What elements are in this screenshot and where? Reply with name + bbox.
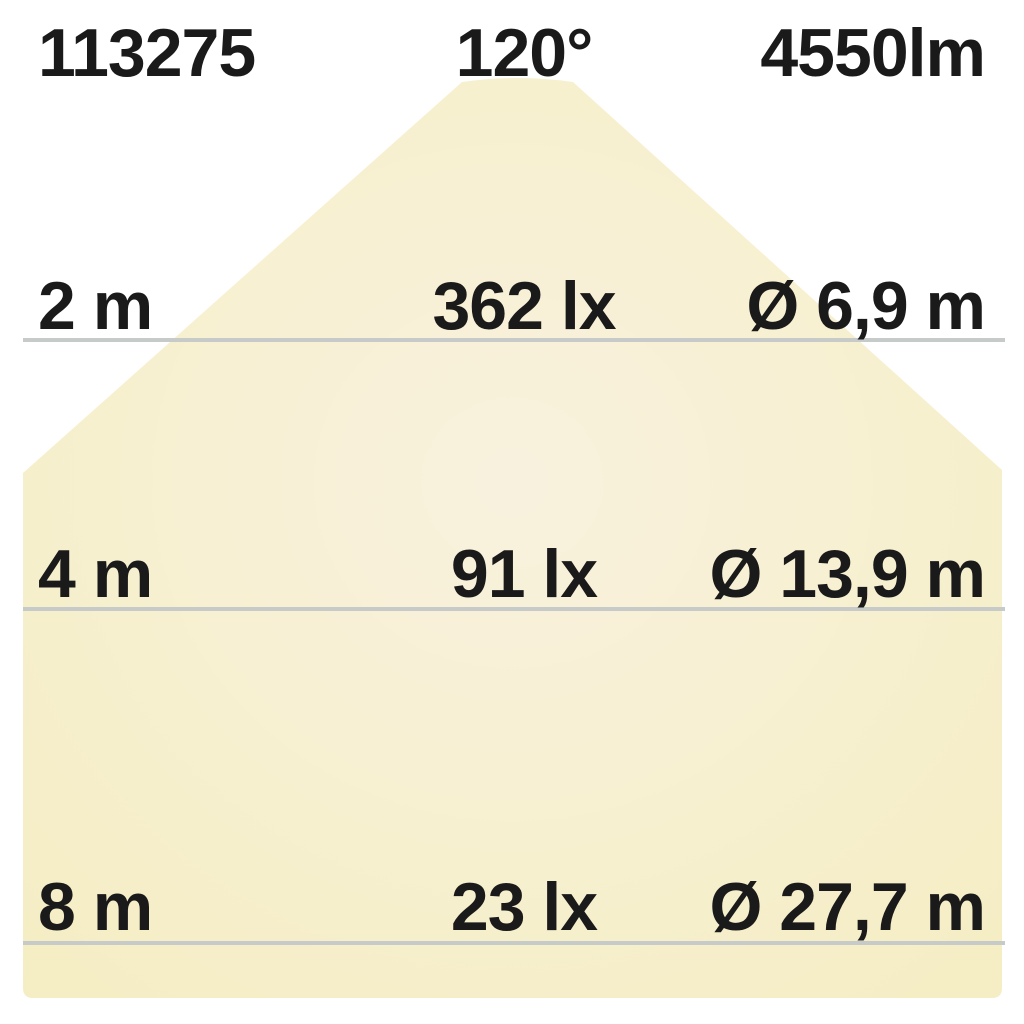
beam-diameter: Ø 13,9 m <box>710 540 986 608</box>
beam-diameter: Ø 6,9 m <box>746 272 985 340</box>
beam-diameter: Ø 27,7 m <box>710 873 986 941</box>
luminous-flux: 4550lm <box>760 19 985 87</box>
header-row: 113275 120° 4550lm <box>0 19 1024 87</box>
measurement-row-4m: 4 m 91 lx Ø 13,9 m <box>0 540 1024 608</box>
photometric-diagram: 113275 120° 4550lm 2 m 362 lx Ø 6,9 m 4 … <box>0 0 1024 1024</box>
measurement-row-8m: 8 m 23 lx Ø 27,7 m <box>0 873 1024 941</box>
measurement-row-2m: 2 m 362 lx Ø 6,9 m <box>0 272 1024 340</box>
